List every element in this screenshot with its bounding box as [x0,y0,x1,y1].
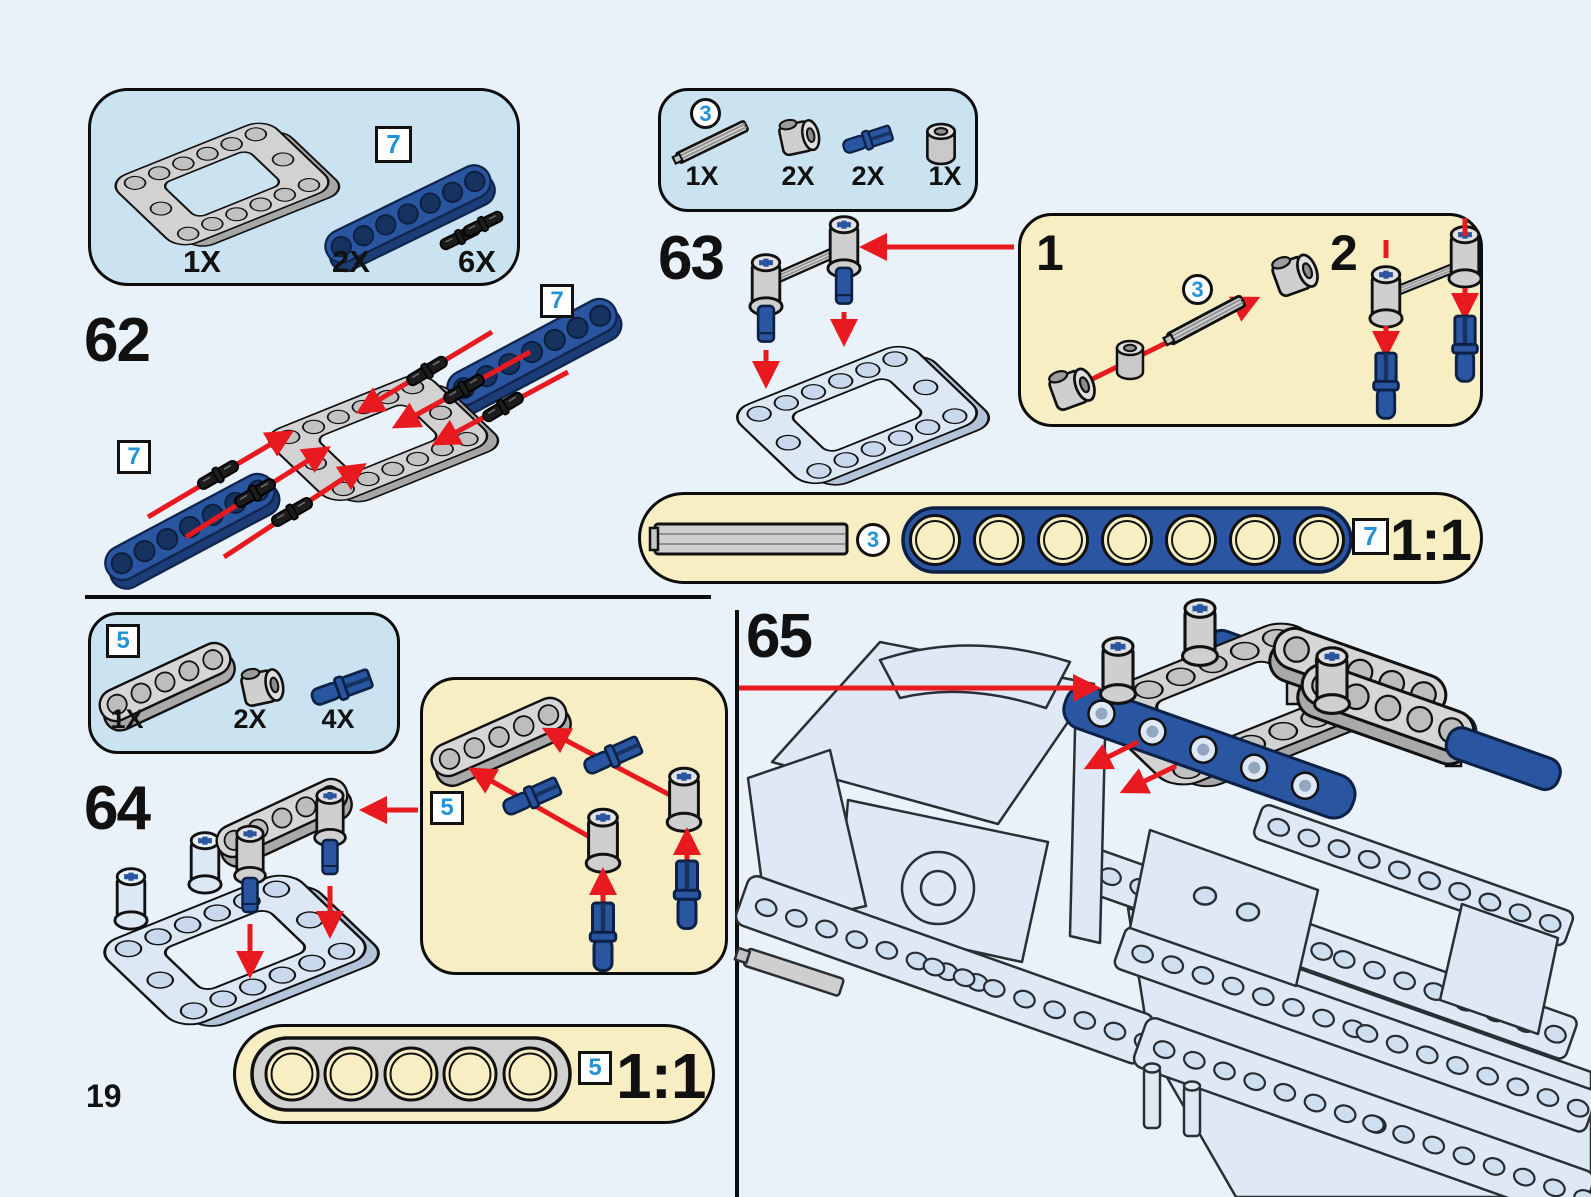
frame-assembled-icon [94,867,388,1038]
step65-subassembly [1058,600,1564,824]
blue-pin-icon [836,268,852,304]
black-pin-icon [480,389,526,425]
blue-pin-icon [758,306,774,342]
black-pin-icon [269,494,315,530]
right-upper-bar [1252,803,1575,947]
step62-arrows [148,332,568,557]
bridge-beam-icon [1292,659,1479,770]
step-number-65: 65 [746,606,811,668]
step-number-63: 63 [658,228,723,290]
axle-connector-icon [750,255,782,315]
step65-arrows [739,688,1176,790]
engine-block [838,800,1048,962]
beam-5-gray-icon [211,774,357,872]
blue-pin-icon [323,840,338,874]
part-callout-3: 3 [1182,274,1213,305]
part-callout-7: 7 [1352,518,1389,555]
right-blue-beam-icon [1442,724,1564,794]
part-callout-7: 7 [375,126,412,163]
qty-label: 6X [442,246,512,277]
step64-arrows [250,810,418,972]
page-number: 19 [86,1080,122,1112]
qty-label: 1X [910,163,980,190]
chassis-upper-rail [1079,847,1579,1060]
qty-label: 2X [316,246,386,277]
axle-connector-icon [1315,648,1350,714]
frame-5x7-icon [1080,614,1398,799]
substep-2: 2 [1330,228,1358,278]
step63-arrows [766,247,1014,382]
deck-floor [1128,908,1591,1197]
chassis-front-rail [733,873,1164,1068]
substep-callout-step64 [420,677,728,975]
step-number-64: 64 [84,778,149,840]
step62-diagram [99,293,627,594]
scale-ratio-top: 1:1 [1390,512,1471,570]
step65-model [733,642,1591,1197]
substep-callout-step63 [1018,213,1483,427]
qty-label: 2X [763,163,833,190]
qty-label: 1X [667,163,737,190]
scale-ratio-bottom: 1:1 [616,1044,706,1108]
axle-connector-icon [115,869,147,929]
frame-assembled-icon [728,339,998,496]
deck-pegs [1144,1064,1200,1137]
engine-fan [902,852,974,924]
axle-connector-icon [189,833,221,893]
chassis-rear-rail [1131,1015,1591,1197]
axle-connector-icon [235,826,266,884]
center-post [1070,690,1106,943]
section-divider-vertical [735,610,739,1197]
qty-label: 1X [167,246,237,277]
diagonal-brace [856,926,1124,1048]
black-pin-icon [404,353,450,389]
part-callout-7: 7 [540,284,574,318]
deck-planks [1148,940,1591,1142]
part-callout-7: 7 [117,440,151,474]
cab-windshield [880,645,1070,708]
beam-7-blue-icon [99,468,285,594]
black-pin-icon [195,457,241,493]
left-fender [748,750,866,928]
substep-1: 1 [1036,228,1064,278]
axle-connector-icon [1183,600,1218,666]
instruction-page: 62 63 64 65 1 2 1X 2X 6X 1X 2X 2X 1X 1X … [0,0,1591,1197]
bridge-beam-icon [1264,623,1451,734]
section-divider-horizontal [85,595,711,599]
black-pin-icon [441,371,487,407]
qty-label: 4X [303,706,373,733]
part-callout-5: 5 [106,624,140,658]
axle-stub [734,945,844,996]
beam-7-blue-icon [441,293,627,419]
cab-rear-panel [772,642,1094,824]
axle-3-icon [769,247,839,285]
part-callout-3: 3 [690,98,721,129]
rear-blue-beam-icon [1200,626,1481,755]
axle-connector-icon [1101,638,1136,704]
qty-label: 2X [833,163,903,190]
deck-side-rail [1113,925,1591,1133]
black-pin-icon [232,475,278,511]
step63-diagram [728,217,1014,496]
front-blue-beam-icon [1058,680,1360,823]
part-callout-3: 3 [856,523,890,557]
step-number-62: 62 [84,310,149,372]
right-block [1440,904,1558,1034]
axle-connector-icon [315,788,346,846]
frame-5x7-icon [260,369,506,512]
center-block [1130,830,1318,986]
axle-connector-icon [828,217,860,277]
qty-label: 1X [92,706,162,733]
blue-pin-icon [243,878,258,912]
qty-label: 2X [215,706,285,733]
part-callout-5: 5 [578,1051,612,1085]
part-callout-5: 5 [430,791,464,825]
